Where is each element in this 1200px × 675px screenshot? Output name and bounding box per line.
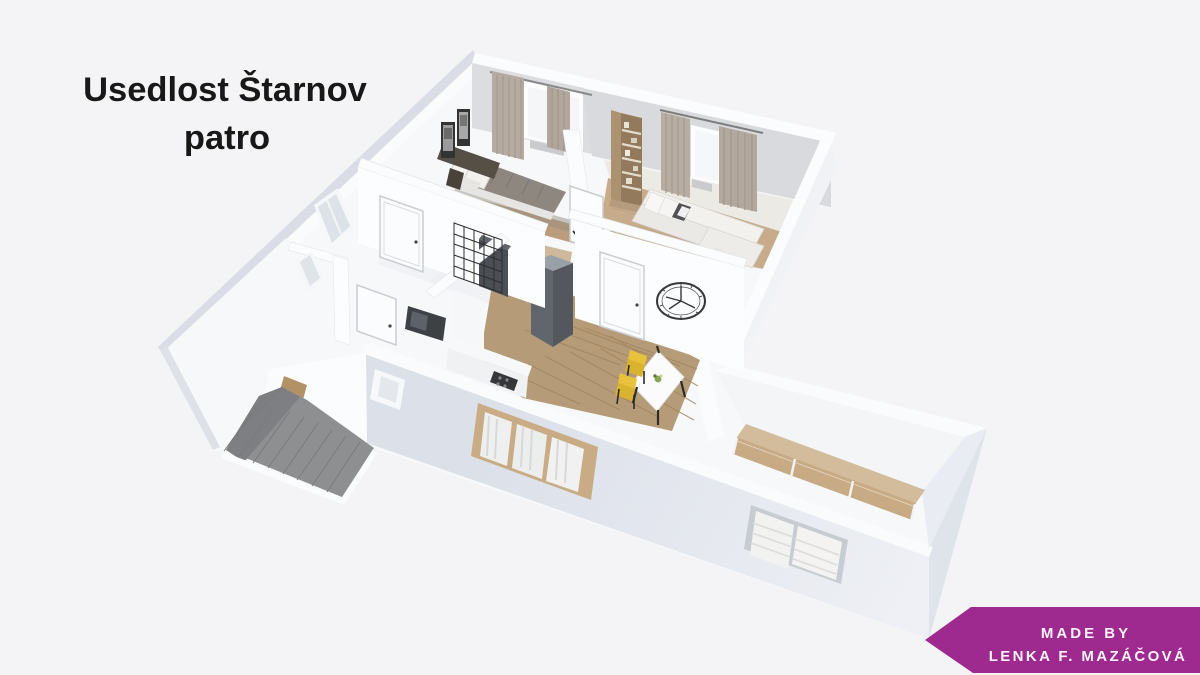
svg-text:patro: patro — [184, 119, 270, 157]
svg-text:MADE BY: MADE BY — [1041, 625, 1131, 642]
svg-text:LENKA F. MAZÁČOVÁ: LENKA F. MAZÁČOVÁ — [989, 647, 1188, 665]
svg-text:Usedlost Štarnov: Usedlost Štarnov — [83, 69, 368, 109]
